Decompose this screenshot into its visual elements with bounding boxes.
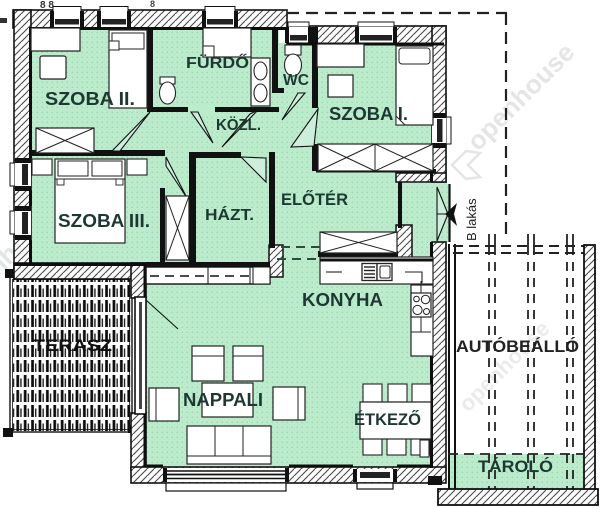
svg-text:SZOBA III.: SZOBA III. xyxy=(58,211,150,231)
svg-text:HÁZT.: HÁZT. xyxy=(205,205,254,224)
svg-text:SZOBA II.: SZOBA II. xyxy=(45,89,135,109)
svg-text:NAPPALI: NAPPALI xyxy=(183,390,263,410)
svg-text:KÖZL.: KÖZL. xyxy=(216,115,261,134)
svg-text:AUTÓBEÁLLÓ: AUTÓBEÁLLÓ xyxy=(456,337,579,356)
svg-text:8 8: 8 8 xyxy=(40,0,54,11)
svg-text:8: 8 xyxy=(150,0,155,9)
svg-text:ÉTKEZŐ: ÉTKEZŐ xyxy=(354,410,421,429)
svg-text:SZOBA I.: SZOBA I. xyxy=(329,104,408,124)
svg-text:ELŐTÉR: ELŐTÉR xyxy=(281,190,348,209)
svg-text:FÜRDŐ: FÜRDŐ xyxy=(186,53,249,72)
svg-text:TÁROLÓ: TÁROLÓ xyxy=(478,457,553,476)
svg-text:TERASZ: TERASZ xyxy=(33,336,112,355)
svg-text:B lakás: B lakás xyxy=(464,198,479,241)
svg-text:WC: WC xyxy=(283,72,309,89)
svg-text:KONYHA: KONYHA xyxy=(302,290,383,310)
